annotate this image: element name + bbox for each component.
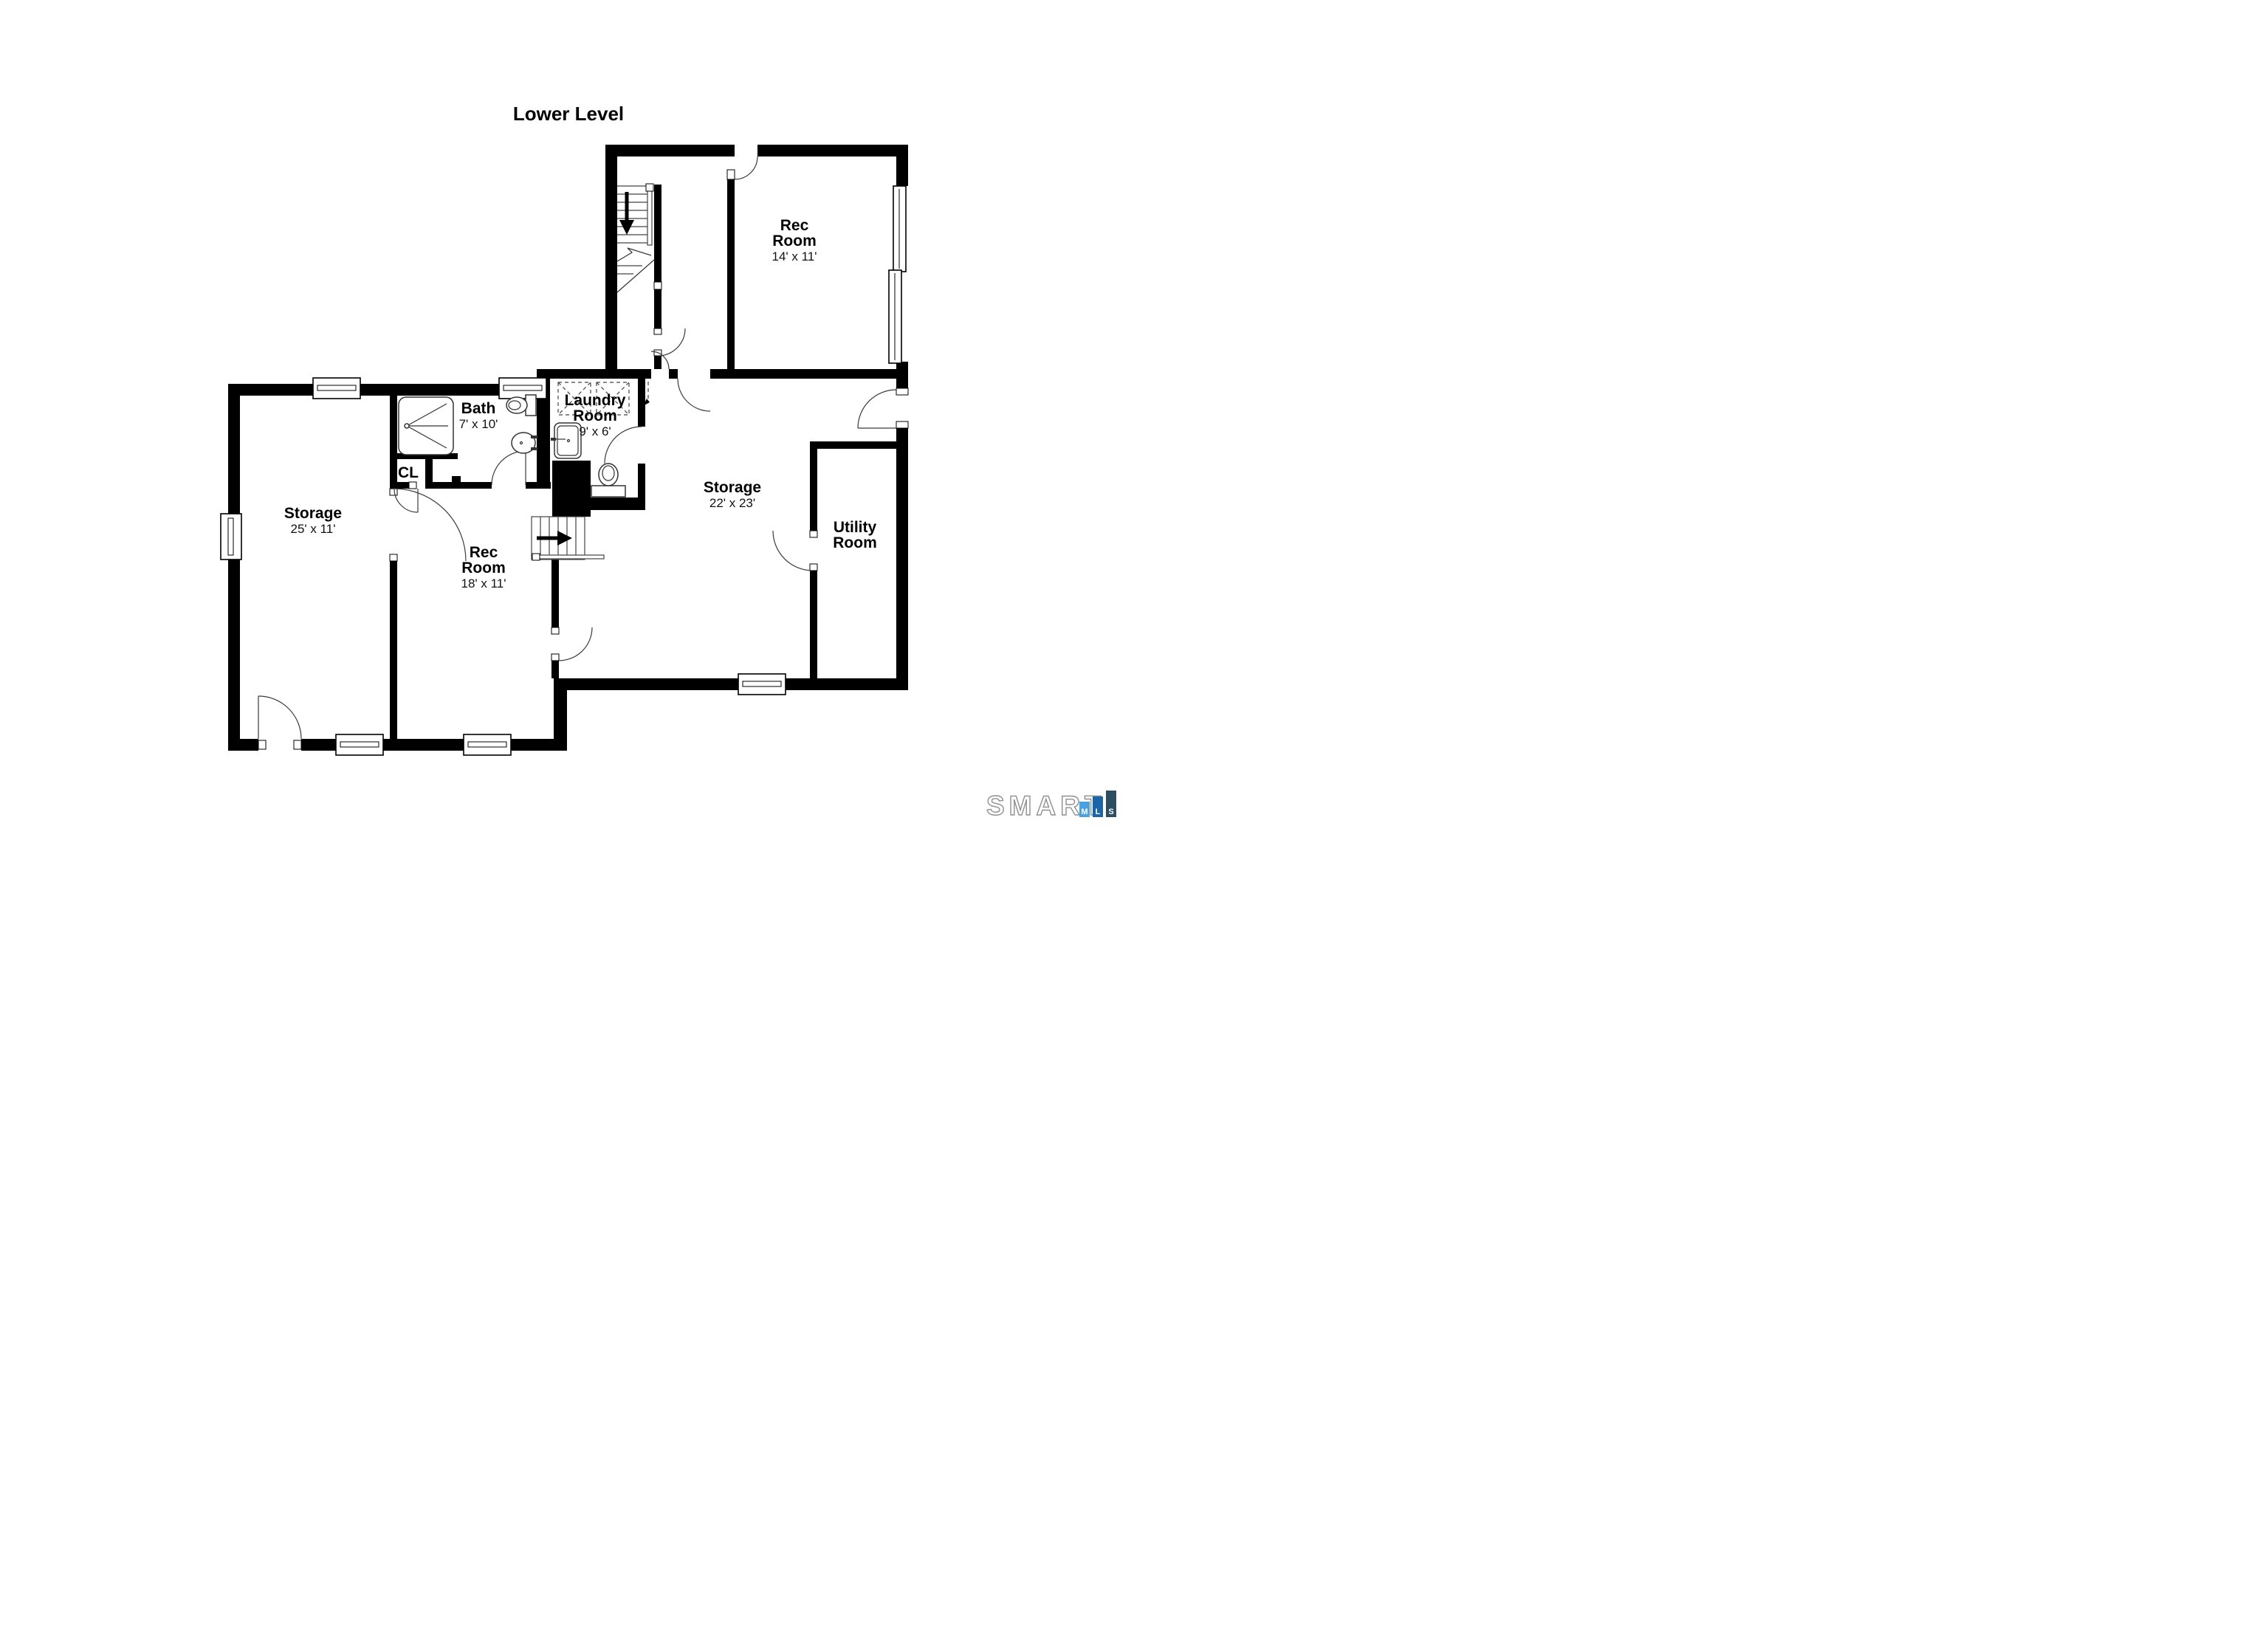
window — [889, 270, 901, 363]
window — [336, 734, 383, 755]
room-dims-rec-room-lower: 18' x 11' — [461, 576, 506, 591]
stairs-lower — [532, 517, 604, 560]
handrail — [536, 555, 604, 559]
window — [738, 674, 786, 695]
utility-sink-icon — [551, 423, 581, 458]
door-arc — [658, 328, 685, 356]
svg-text:S: S — [1108, 808, 1113, 816]
room-label-storage-right: Storage — [704, 479, 761, 496]
door-arc — [773, 531, 813, 571]
sink-icon — [512, 433, 537, 453]
door-arc — [394, 489, 466, 561]
room-dims-laundry: 9' x 6' — [579, 424, 611, 438]
svg-text:Room: Room — [461, 560, 506, 576]
window — [464, 734, 511, 755]
door-arc — [394, 489, 418, 512]
door-arc — [678, 379, 710, 411]
door-arc — [258, 696, 301, 739]
room-label-rec-room-upper: Rec — [780, 217, 809, 234]
floor-plan-page: Lower Level Rec Room 14' x 11' Laundry R… — [0, 0, 1134, 824]
room-label-closet: CL — [398, 464, 419, 481]
svg-text:L: L — [1096, 808, 1101, 816]
svg-text:Room: Room — [573, 407, 617, 424]
floor-plan: Lower Level Rec Room 14' x 11' Laundry R… — [0, 0, 1134, 824]
stairs-upper — [617, 184, 654, 292]
shower-pan-icon — [399, 397, 453, 455]
stairs-down-arrow-icon — [619, 192, 634, 235]
toilet-icon — [591, 464, 625, 497]
room-label-rec-room-lower: Rec — [470, 544, 498, 561]
svg-text:Room: Room — [772, 233, 817, 249]
room-label-utility: Utility — [834, 519, 877, 536]
svg-text:M: M — [1081, 808, 1087, 816]
window — [893, 186, 906, 272]
break-line — [617, 248, 651, 261]
svg-text:Room: Room — [833, 534, 877, 551]
door-arc — [735, 156, 757, 179]
room-dims-storage-right: 22' x 23' — [709, 496, 755, 510]
smartmls-logo: SMART M L S — [986, 791, 1116, 821]
window — [499, 378, 546, 399]
handrail — [647, 186, 652, 245]
door-arc — [559, 627, 592, 661]
door-arc — [492, 451, 526, 485]
room-dims-bath: 7' x 10' — [459, 417, 498, 431]
window — [221, 514, 241, 560]
room-label-laundry: Laundry — [565, 392, 626, 409]
window — [313, 378, 360, 399]
room-label-storage-left: Storage — [284, 505, 342, 522]
room-dims-rec-room-upper: 14' x 11' — [772, 249, 817, 264]
toilet-icon — [506, 395, 536, 416]
room-label-bath: Bath — [461, 400, 496, 417]
page-title: Lower Level — [513, 103, 624, 125]
room-dims-storage-left: 25' x 11' — [291, 522, 336, 536]
door-arc — [858, 390, 896, 428]
